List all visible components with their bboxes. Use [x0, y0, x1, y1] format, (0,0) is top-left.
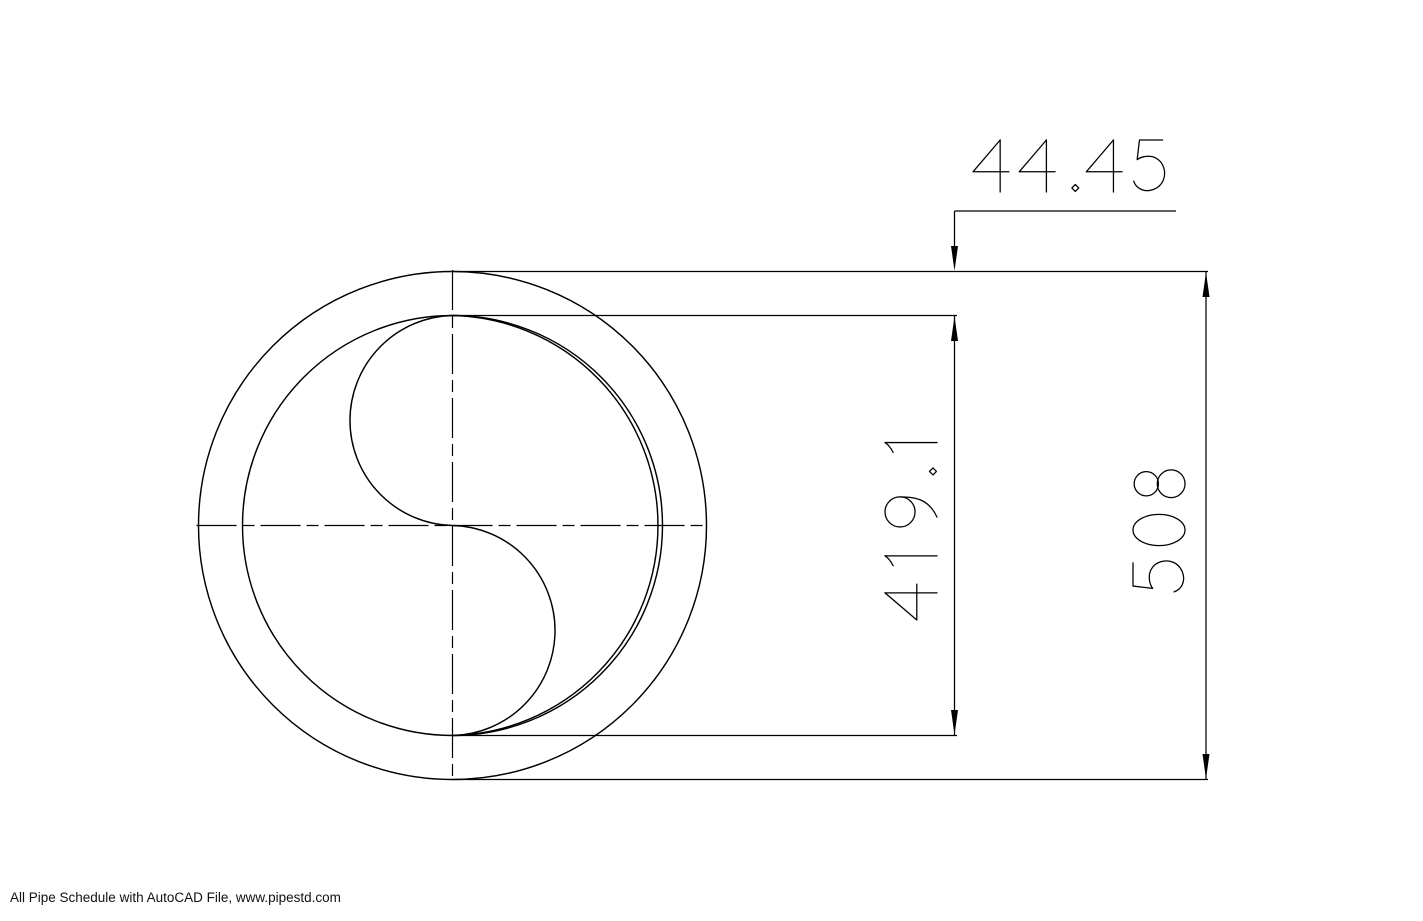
dim-inner-diameter-text	[885, 443, 937, 620]
dim-outer-diameter-text	[1133, 470, 1185, 592]
footer-credit: All Pipe Schedule with AutoCAD File, www…	[10, 889, 341, 907]
pipe-geometry	[197, 270, 709, 781]
pipe-section-drawing	[0, 0, 1423, 921]
drawing-canvas: All Pipe Schedule with AutoCAD File, www…	[0, 0, 1423, 921]
dim-outer-arrow-up	[1203, 272, 1210, 297]
dim-inner-diameter	[885, 316, 958, 735]
dim-outer-arrow-down	[1203, 754, 1210, 779]
dim-wall-arrow-down	[951, 246, 958, 271]
dim-wall-thickness-text	[973, 140, 1165, 192]
dim-inner-arrow-up	[951, 316, 958, 341]
dim-outer-diameter	[1133, 272, 1210, 779]
dim-wall-thickness	[951, 140, 1176, 271]
dim-inner-arrow-down	[951, 710, 958, 735]
